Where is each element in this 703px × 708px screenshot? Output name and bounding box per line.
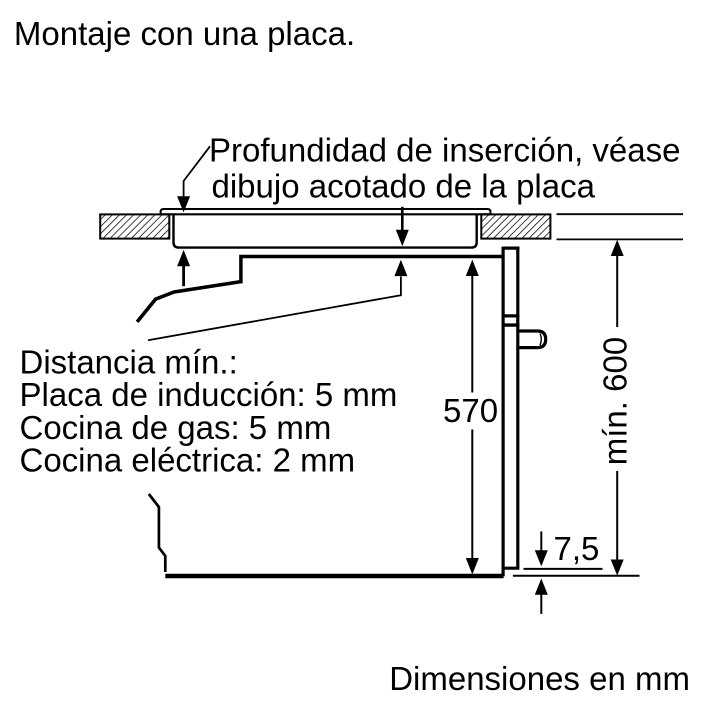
svg-text:7,5: 7,5	[554, 530, 600, 567]
svg-text:Dimensiones en mm: Dimensiones en mm	[389, 660, 690, 697]
svg-text:dibujo acotado de la placa: dibujo acotado de la placa	[212, 167, 596, 204]
svg-text:570: 570	[443, 392, 498, 429]
svg-text:Profundidad de inserción, véas: Profundidad de inserción, véase	[209, 131, 680, 168]
svg-text:Placa de inducción: 5 mm: Placa de inducción: 5 mm	[20, 376, 398, 413]
svg-text:Cocina eléctrica: 2 mm: Cocina eléctrica: 2 mm	[20, 441, 356, 478]
svg-text:mín. 600: mín. 600	[597, 337, 634, 465]
svg-text:Montaje con una placa.: Montaje con una placa.	[14, 15, 355, 52]
svg-text:Cocina de gas: 5 mm: Cocina de gas: 5 mm	[20, 409, 332, 446]
